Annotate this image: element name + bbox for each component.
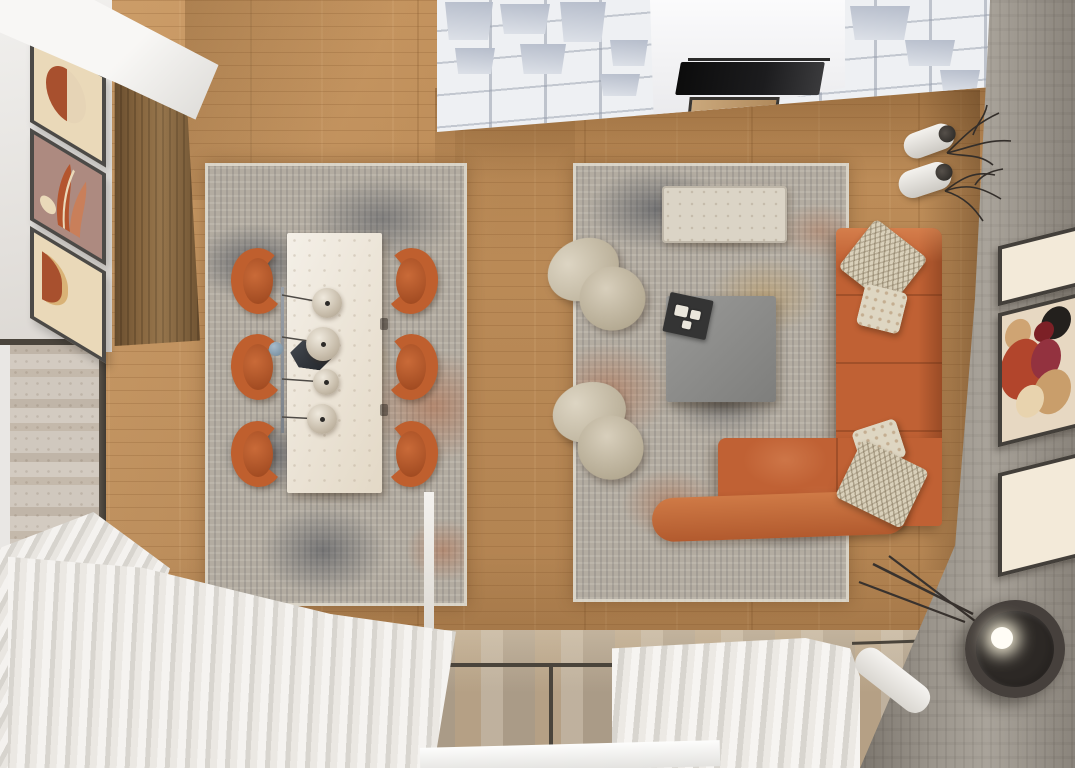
shelf-cell — [560, 2, 606, 42]
shelf-cell — [905, 40, 955, 66]
dining-chair — [384, 421, 438, 487]
boucle-armchair — [543, 227, 654, 343]
chair-seat — [243, 258, 273, 304]
boucle-armchair — [543, 372, 657, 489]
pendant-light — [306, 327, 340, 361]
floor-lamp — [965, 600, 1065, 698]
coffee-table — [666, 296, 776, 402]
dining-chair — [384, 248, 438, 314]
serving-tray — [662, 292, 713, 340]
shelf-cell — [850, 6, 910, 40]
shelf-cell — [600, 74, 640, 96]
chair-gap-shadow — [380, 318, 388, 330]
wall-art-frame — [998, 292, 1075, 447]
dining-chair — [231, 248, 285, 314]
shelf-cell — [610, 40, 648, 66]
chair-gap-shadow — [380, 404, 388, 416]
chair-seat — [396, 258, 426, 304]
curtain-edge-strip — [424, 492, 434, 644]
pendant-light — [313, 369, 339, 395]
wall-art-frame — [998, 452, 1075, 577]
shelf-cell — [445, 2, 493, 40]
stone-bench — [662, 186, 787, 243]
tv — [675, 62, 825, 95]
pendant-light — [312, 288, 342, 318]
chair-seat — [243, 431, 273, 477]
chair-seat — [396, 431, 426, 477]
pendant-light — [307, 404, 337, 434]
art-split-circle — [46, 57, 86, 133]
dining-chair — [384, 334, 438, 400]
room-render: Photorealistic top-down 3D render of an … — [0, 0, 1075, 768]
dining-chair — [231, 421, 285, 487]
tv-edge — [688, 58, 830, 61]
chair-seat — [396, 344, 426, 390]
shelf-cell — [520, 44, 566, 74]
cup — [681, 320, 691, 330]
shelf-cell — [455, 48, 495, 74]
shelf-cell — [500, 4, 550, 34]
art-figures — [1002, 299, 1071, 434]
cup — [690, 310, 702, 321]
lamp-bulb — [991, 627, 1013, 649]
cup — [674, 304, 689, 317]
